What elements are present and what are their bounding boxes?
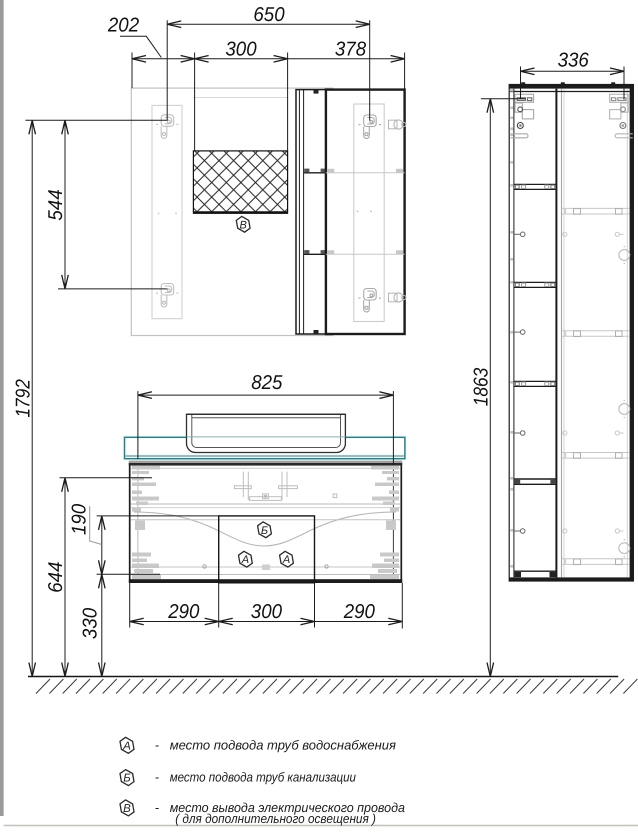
svg-text:В: В [123, 803, 131, 815]
svg-text:В: В [240, 219, 247, 231]
svg-text:330: 330 [80, 608, 102, 639]
svg-text:290: 290 [343, 601, 375, 623]
svg-text:место подвода труб водоснабжен: место подвода труб водоснабжения [170, 738, 396, 753]
svg-text:190: 190 [69, 504, 91, 535]
svg-text:300: 300 [251, 601, 282, 623]
svg-text:336: 336 [558, 49, 590, 71]
svg-text:1792: 1792 [12, 379, 34, 418]
svg-text:А: А [122, 740, 131, 752]
svg-text:-: - [155, 770, 160, 785]
svg-text:1863: 1863 [471, 368, 493, 407]
svg-text:место подвода труб канализации: место подвода труб канализации [170, 770, 356, 785]
svg-text:650: 650 [253, 4, 284, 26]
svg-text:290: 290 [167, 601, 199, 623]
svg-text:А: А [282, 554, 290, 566]
svg-text:А: А [241, 554, 249, 566]
svg-text:-: - [155, 800, 160, 815]
svg-text:202: 202 [107, 15, 139, 37]
svg-text:544: 544 [45, 189, 67, 220]
svg-text:Б: Б [261, 525, 268, 537]
svg-text:300: 300 [225, 38, 256, 60]
svg-text:378: 378 [335, 38, 366, 60]
svg-text:Б: Б [123, 773, 131, 785]
svg-text:644: 644 [45, 562, 67, 593]
svg-text:-: - [155, 738, 160, 753]
svg-text:( для дополнительного освещени: ( для дополнительного освещения ) [175, 811, 376, 826]
svg-text:825: 825 [251, 372, 283, 394]
